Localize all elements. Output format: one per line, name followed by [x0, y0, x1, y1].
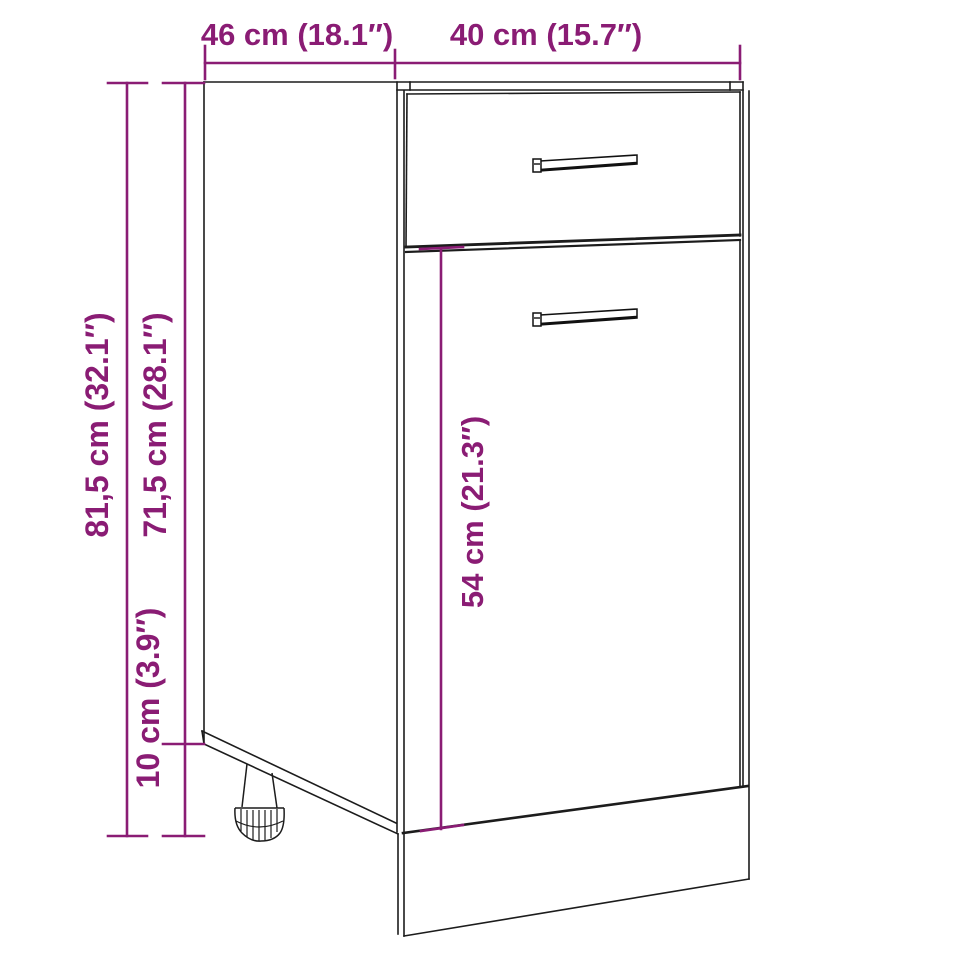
dimension-labels: 46 cm (18.1″) 40 cm (15.7″) 81,5 cm (32.…	[79, 17, 642, 788]
foot-nut-ribs	[241, 809, 277, 841]
product-dimension-diagram: 46 cm (18.1″) 40 cm (15.7″) 81,5 cm (32.…	[0, 0, 955, 955]
drawer-top-edge	[407, 92, 740, 94]
drawer-left-edge	[406, 94, 407, 247]
plinth-bottom-edge	[404, 879, 749, 936]
label-height-legs: 10 cm (3.9″)	[130, 608, 166, 789]
label-width-top: 40 cm (15.7″)	[450, 17, 642, 52]
label-height-door: 54 cm (21.3″)	[455, 416, 490, 608]
drawer-handle	[533, 155, 637, 172]
door-handle-endcap	[533, 313, 541, 326]
label-height-carcass: 71,5 cm (28.1″)	[137, 312, 173, 537]
cabinet-dimension-drawing: 46 cm (18.1″) 40 cm (15.7″) 81,5 cm (32.…	[0, 0, 955, 955]
adjustable-foot	[235, 764, 284, 841]
door-handle	[533, 309, 637, 326]
side-panel-bottom-edge-upper	[202, 731, 396, 823]
label-height-total: 81,5 cm (32.1″)	[79, 312, 115, 537]
drawer-handle-endcap	[533, 159, 541, 172]
side-panel-bottom-edge-lower	[204, 744, 398, 834]
foot-stem-left	[242, 764, 247, 807]
label-depth-top: 46 cm (18.1″)	[201, 17, 393, 52]
dimension-lines	[108, 46, 740, 836]
